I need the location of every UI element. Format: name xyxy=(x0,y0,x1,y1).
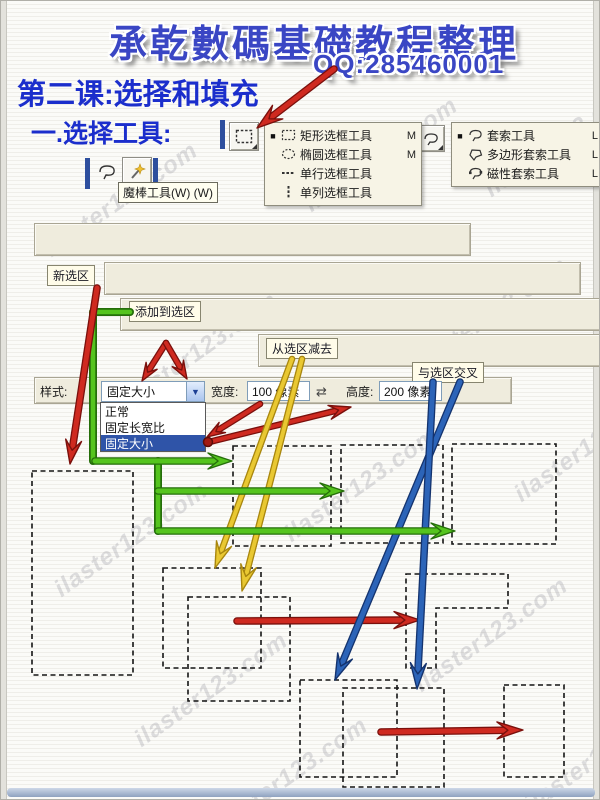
red-arrow-head xyxy=(207,422,226,437)
menu-item-label: 矩形选框工具 xyxy=(298,127,400,144)
watermark-text: ilaster123.com xyxy=(49,477,213,604)
tool-options-bar-1 xyxy=(34,223,471,256)
red-arrow-shaft xyxy=(215,404,260,432)
menu-item-矩形选框工具[interactable]: ■矩形选框工具M xyxy=(267,126,419,145)
menu-item-label: 磁性套索工具 xyxy=(485,165,582,182)
width-input[interactable]: 100 像素 xyxy=(247,381,310,401)
watermark-text: ilaster123.com xyxy=(279,422,443,549)
rectangular-marquee-tool-button[interactable] xyxy=(229,122,259,151)
blue-arrow-head xyxy=(335,653,352,680)
menu-item-shortcut: M xyxy=(400,130,419,142)
menu-item-shortcut: L xyxy=(582,130,600,142)
menu-item-label: 单行选框工具 xyxy=(298,165,400,182)
flyout-corner-icon xyxy=(438,145,443,150)
watermark-text: ilaster123.com xyxy=(409,572,573,699)
lesson-title: 第二课:选择和填充 xyxy=(17,71,259,113)
magic-wand-tooltip: 魔棒工具(W) (W) xyxy=(118,182,218,203)
current-tool-bullet: ■ xyxy=(267,131,279,141)
selection-dashed-rect xyxy=(504,685,564,777)
yellow-arrow-head xyxy=(215,541,232,568)
style-option-固定大小[interactable]: 固定大小 xyxy=(101,435,205,451)
menu-item-label: 椭圆选框工具 xyxy=(298,146,400,163)
lasso-icon xyxy=(422,131,440,147)
lasso-icon xyxy=(466,128,485,143)
lasso-icon xyxy=(97,163,117,181)
watermark-text: ilaster123.com xyxy=(209,712,373,800)
red-arrow-shaft xyxy=(381,730,510,732)
tool-options-bar-2 xyxy=(104,262,581,295)
callout-新选区: 新选区 xyxy=(47,265,95,286)
watermark-text: ilaster123.com xyxy=(129,627,293,754)
bottom-window-band xyxy=(7,788,595,797)
lasso-flyout-menu: ■套索工具L多边形套索工具L磁性套索工具L xyxy=(451,122,600,187)
left-edge xyxy=(1,1,7,799)
red-arrow-head xyxy=(497,722,523,739)
menu-item-单列选框工具[interactable]: 单列选框工具 xyxy=(267,183,419,202)
swap-dimensions-icon[interactable]: ⇄ xyxy=(316,384,327,400)
red-arrow-head xyxy=(66,439,82,464)
menu-item-单行选框工具[interactable]: 单行选框工具 xyxy=(267,164,419,183)
style-option-固定长宽比[interactable]: 固定长宽比 xyxy=(101,419,205,435)
ellipse-marquee-icon xyxy=(279,147,298,162)
qq-number: QQ:285460001 xyxy=(313,49,504,80)
watermark-text: ilaster123.com xyxy=(519,692,600,800)
menu-item-套索工具[interactable]: ■套索工具L xyxy=(454,126,600,145)
yellow-arrow-head xyxy=(241,564,256,591)
menu-item-椭圆选框工具[interactable]: 椭圆选框工具M xyxy=(267,145,419,164)
right-edge xyxy=(593,1,599,799)
red-arrow-head xyxy=(328,406,351,420)
watermark-text: ilaster123.com xyxy=(509,382,600,509)
rect-marquee-icon xyxy=(279,128,298,143)
chevron-down-icon[interactable]: ▼ xyxy=(186,382,204,401)
width-label: 宽度: xyxy=(211,378,238,405)
callout-添加到选区: 添加到选区 xyxy=(129,301,201,322)
menu-item-shortcut: L xyxy=(582,168,600,180)
menu-item-磁性套索工具[interactable]: 磁性套索工具L xyxy=(454,164,600,183)
style-label: 样式: xyxy=(40,378,67,405)
green-arrow-head xyxy=(431,523,455,539)
style-dropdown-value: 固定大小 xyxy=(102,383,186,400)
magnetic-lasso-icon xyxy=(466,166,485,181)
callout-与选区交叉: 与选区交叉 xyxy=(412,362,484,383)
blue-arrow-outline xyxy=(340,382,460,668)
blue-arrow-shaft xyxy=(340,382,460,668)
style-dropdown-list: 正常固定长宽比固定大小 xyxy=(100,402,206,452)
menu-item-shortcut: M xyxy=(400,149,419,161)
current-tool-bullet: ■ xyxy=(454,131,466,141)
callout-从选区减去: 从选区减去 xyxy=(266,338,338,359)
flyout-corner-icon xyxy=(252,144,257,149)
style-dropdown[interactable]: 固定大小 ▼ xyxy=(101,381,205,402)
menu-item-label: 多边形套索工具 xyxy=(485,146,582,163)
red-arrow-outline xyxy=(215,404,260,432)
menu-item-label: 单列选框工具 xyxy=(298,184,400,201)
toolbar-separator xyxy=(85,158,90,189)
marquee-flyout-menu: ■矩形选框工具M椭圆选框工具M单行选框工具单列选框工具 xyxy=(264,122,422,206)
menu-item-多边形套索工具[interactable]: 多边形套索工具L xyxy=(454,145,600,164)
polygon-lasso-icon xyxy=(466,147,485,162)
tutorial-page: ilaster123.comilaster123.comilaster123.c… xyxy=(0,0,600,800)
lesson-subtitle: 一.选择工具: xyxy=(31,114,171,150)
style-option-正常[interactable]: 正常 xyxy=(101,403,205,419)
magic-wand-icon xyxy=(128,163,146,181)
menu-item-shortcut: L xyxy=(582,149,600,161)
red-arrow-shaft xyxy=(72,288,97,452)
single-row-marquee-icon xyxy=(279,166,298,181)
single-column-marquee-icon xyxy=(279,185,298,200)
rect-marquee-icon xyxy=(235,129,253,144)
lasso-tool-button-2[interactable] xyxy=(93,158,120,185)
red-arrow-outline xyxy=(72,288,97,452)
red-arrow-shaft xyxy=(209,410,340,442)
menu-item-label: 套索工具 xyxy=(485,127,582,144)
red-arrow-outline xyxy=(209,410,340,442)
height-input[interactable]: 200 像素 xyxy=(379,381,442,401)
green-arrow-head xyxy=(208,453,232,469)
height-label: 高度: xyxy=(346,378,373,405)
toolbar-separator xyxy=(220,120,225,149)
red-arrow-outline xyxy=(381,730,510,732)
red-arrow-head xyxy=(394,612,420,629)
red-arrow-shaft xyxy=(237,620,407,621)
red-arrow-outline xyxy=(237,620,407,621)
